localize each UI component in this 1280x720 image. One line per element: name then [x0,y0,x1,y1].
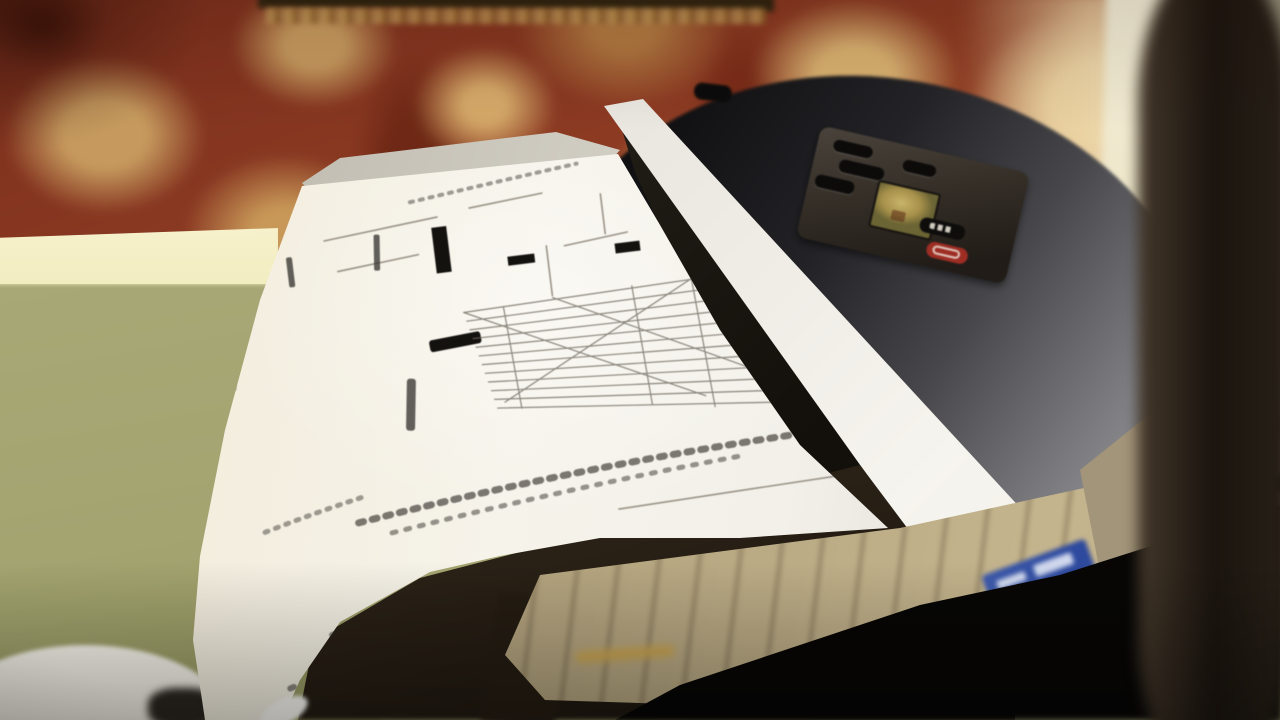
panel-button-1 [832,139,874,160]
frame-gold-fringe [266,8,766,24]
panel-button-4 [814,174,856,196]
panel-button-2 [838,159,886,182]
cancel-button [925,240,970,265]
photo-of-plotter-printing-blueprint [0,0,1280,720]
panel-button-3 [901,159,937,178]
foreground-dark-object [1138,0,1280,720]
